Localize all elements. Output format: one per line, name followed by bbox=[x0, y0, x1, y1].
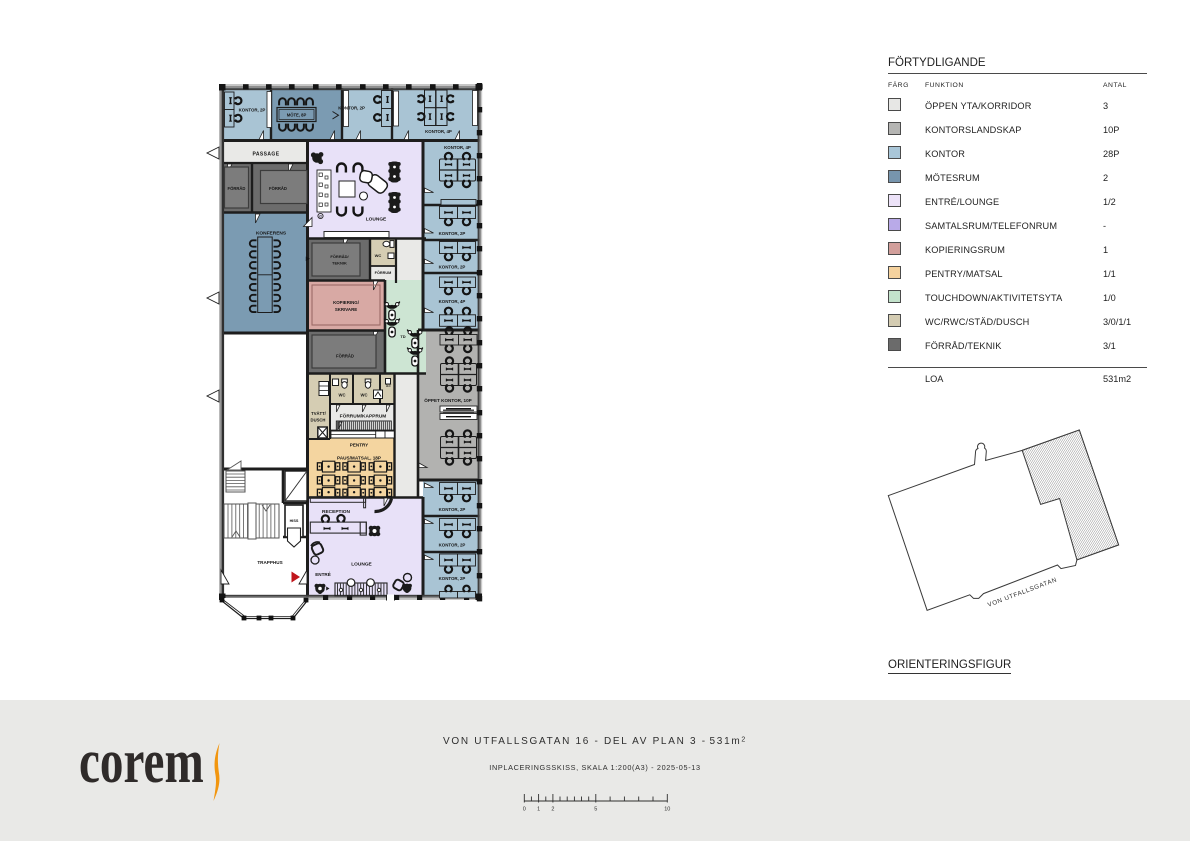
svg-text:FÖRRUM: FÖRRUM bbox=[375, 270, 392, 275]
svg-text:MÖTE, 8P: MÖTE, 8P bbox=[287, 112, 307, 117]
svg-text:WC: WC bbox=[339, 393, 346, 398]
svg-text:PENTRY: PENTRY bbox=[350, 443, 368, 448]
svg-text:1: 1 bbox=[537, 807, 540, 813]
svg-text:KONTOR, 2P: KONTOR, 2P bbox=[439, 265, 466, 270]
svg-text:2: 2 bbox=[551, 807, 554, 813]
svg-text:LOUNGE: LOUNGE bbox=[366, 217, 387, 223]
svg-text:PAUS/MATSAL, 18P: PAUS/MATSAL, 18P bbox=[337, 455, 381, 460]
svg-text:KONTOR, 2P: KONTOR, 2P bbox=[338, 105, 365, 110]
svg-text:FÖRRÅD: FÖRRÅD bbox=[228, 186, 246, 191]
svg-text:ÖPPET KONTOR, 10P: ÖPPET KONTOR, 10P bbox=[424, 397, 471, 403]
svg-text:KONTOR, 2P: KONTOR, 2P bbox=[439, 576, 466, 581]
svg-text:ENTRÉ: ENTRÉ bbox=[315, 570, 331, 577]
svg-text:TD: TD bbox=[400, 334, 405, 339]
svg-text:KOPIERING/: KOPIERING/ bbox=[333, 300, 360, 305]
svg-text:WC: WC bbox=[375, 253, 382, 258]
svg-text:FÖRRÅD: FÖRRÅD bbox=[336, 354, 354, 359]
svg-text:DUSCH: DUSCH bbox=[311, 418, 326, 423]
svg-text:SKRIVARE: SKRIVARE bbox=[335, 307, 357, 312]
svg-text:KONTOR, 4P: KONTOR, 4P bbox=[425, 129, 452, 134]
svg-text:FÖRRUM/KAPPRUM: FÖRRUM/KAPPRUM bbox=[340, 413, 387, 420]
svg-text:KONFERENS: KONFERENS bbox=[256, 231, 287, 237]
svg-text:PASSAGE: PASSAGE bbox=[253, 152, 280, 158]
svg-text:KONTOR, 4P: KONTOR, 4P bbox=[439, 299, 466, 304]
svg-text:WC: WC bbox=[361, 393, 368, 398]
svg-text:TEKNIK: TEKNIK bbox=[332, 261, 347, 266]
svg-text:@: @ bbox=[319, 215, 323, 219]
svg-text:FÖRRÅD: FÖRRÅD bbox=[269, 186, 287, 191]
svg-text:0: 0 bbox=[523, 807, 526, 813]
svg-text:KONTOR, 2P: KONTOR, 2P bbox=[439, 507, 466, 512]
svg-text:TVÄTT/: TVÄTT/ bbox=[311, 411, 326, 416]
svg-text:KONTOR, 2P: KONTOR, 2P bbox=[239, 107, 266, 112]
svg-text:ST: ST bbox=[386, 383, 392, 388]
svg-text:KONTOR, 4P: KONTOR, 4P bbox=[444, 145, 471, 150]
svg-text:5: 5 bbox=[594, 807, 597, 813]
svg-text:KONTOR, 2P: KONTOR, 2P bbox=[439, 542, 466, 547]
svg-text:KONTOR, 2P: KONTOR, 2P bbox=[439, 231, 466, 236]
svg-text:HISS: HISS bbox=[290, 519, 299, 523]
svg-text:10: 10 bbox=[664, 807, 670, 813]
svg-text:LOUNGE: LOUNGE bbox=[351, 561, 372, 567]
svg-text:FÖRRÅD/: FÖRRÅD/ bbox=[330, 254, 349, 259]
svg-text:TRAPPHUS: TRAPPHUS bbox=[257, 560, 282, 565]
svg-text:RECEPTION: RECEPTION bbox=[322, 509, 351, 515]
